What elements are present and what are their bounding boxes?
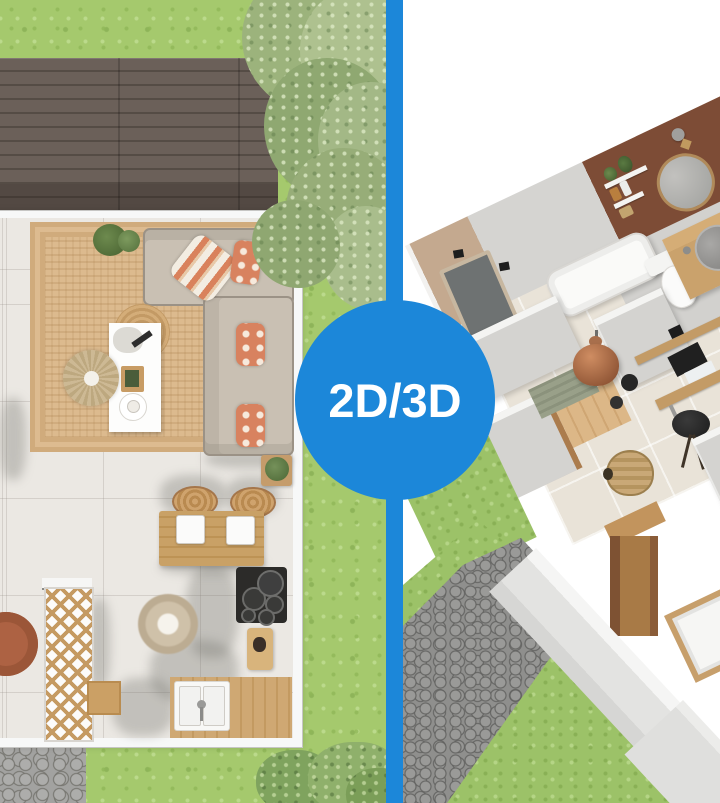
tree-foliage <box>252 200 340 288</box>
lattice-shelving-unit <box>44 587 94 742</box>
2d-3d-toggle-badge[interactable]: 2D/3D <box>295 300 495 500</box>
burner <box>241 608 256 623</box>
pouf-center <box>84 371 99 386</box>
potted-plant-leaf <box>118 230 140 252</box>
pendant-lamp <box>573 344 619 386</box>
stone-path-2d <box>0 742 86 803</box>
deck-plank-seams <box>0 58 278 210</box>
2d-3d-toggle-label: 2D/3D <box>328 373 461 428</box>
wooden-wardrobe <box>610 536 658 636</box>
wall-spotlight <box>453 249 464 259</box>
wall-spotlight <box>499 262 510 272</box>
decor-sphere <box>621 374 638 391</box>
food-item <box>253 637 266 652</box>
screenshot-root: 2D/3D <box>0 0 720 803</box>
basket-ribbon <box>603 468 613 480</box>
cooking-pot <box>257 570 284 597</box>
white-chair <box>226 516 255 545</box>
shadow <box>112 678 174 736</box>
storage-basket <box>606 450 654 496</box>
orange-pillow <box>236 323 265 366</box>
orange-pillow <box>236 404 265 447</box>
sink-basin <box>203 686 225 726</box>
round-fluffy-rug <box>138 594 198 654</box>
kitchen-sink <box>174 681 230 731</box>
white-chair <box>176 515 205 544</box>
burner <box>258 609 275 626</box>
vessel-sink <box>687 217 720 278</box>
door-mat <box>87 681 121 715</box>
shower-tray <box>664 580 720 683</box>
sink-faucet <box>682 245 693 256</box>
mug <box>127 400 140 413</box>
shadow <box>0 398 26 480</box>
faucet-stem <box>200 707 203 721</box>
hanging-ornament <box>680 138 691 149</box>
decor-sphere <box>610 396 623 409</box>
green-book <box>125 370 139 387</box>
side-table-plant <box>265 457 289 481</box>
